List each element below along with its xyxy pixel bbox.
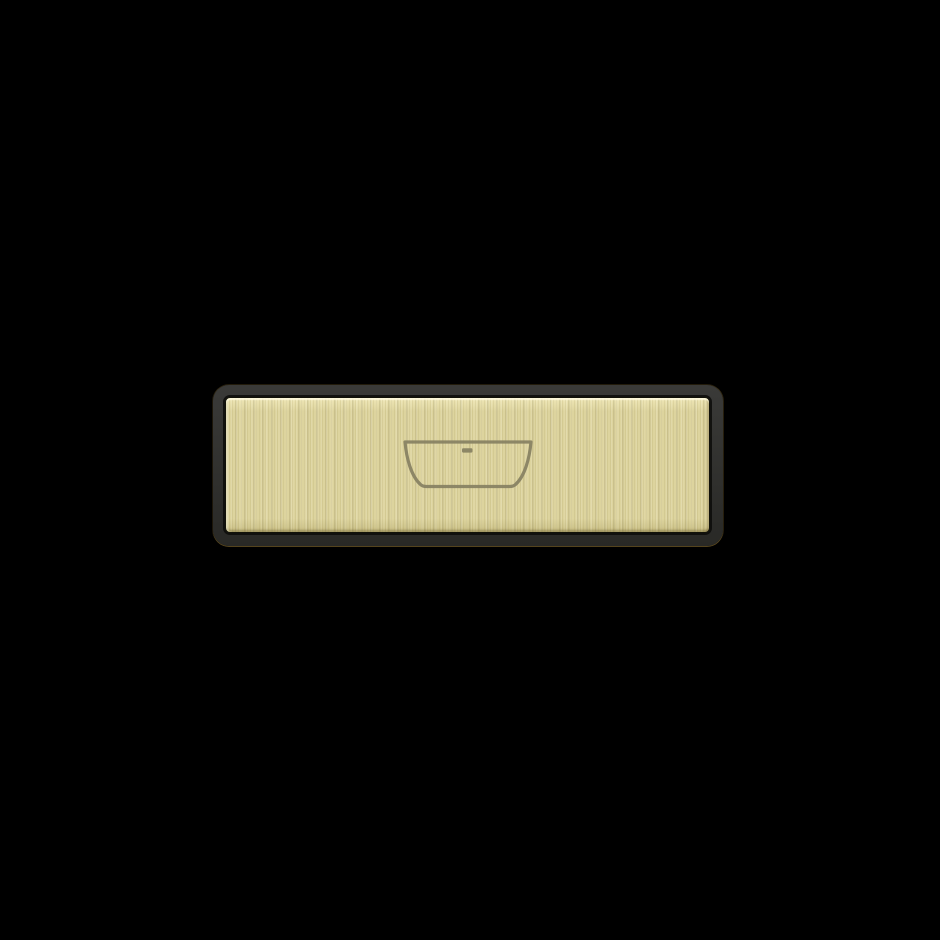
- brass-plate: [225, 397, 710, 533]
- bathtub-icon: [400, 436, 536, 494]
- bathtub-sign-plaque[interactable]: [213, 385, 723, 546]
- bathtub-overflow-slot: [462, 448, 473, 452]
- black-background: [0, 0, 940, 940]
